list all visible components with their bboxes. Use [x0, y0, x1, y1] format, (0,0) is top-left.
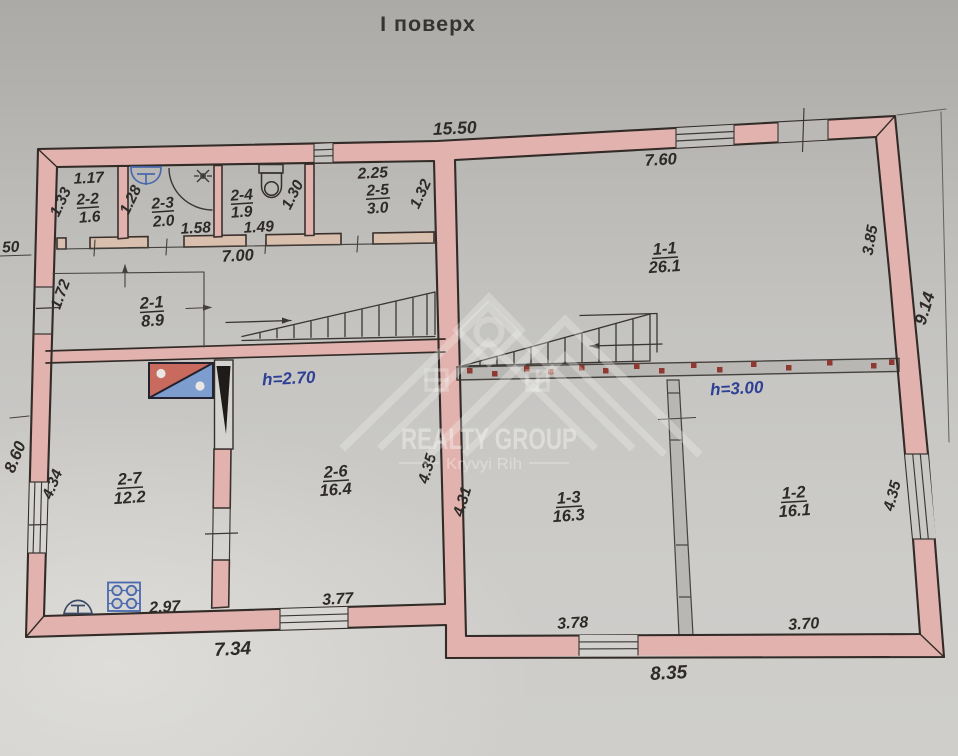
svg-text:16.3: 16.3 [552, 506, 585, 526]
svg-text:7.00: 7.00 [221, 246, 255, 266]
svg-text:3.0: 3.0 [366, 199, 389, 217]
svg-text:3.85: 3.85 [860, 224, 882, 257]
svg-text:7.60: 7.60 [644, 150, 678, 170]
svg-text:2.25: 2.25 [356, 164, 388, 183]
svg-text:3.78: 3.78 [557, 614, 589, 633]
svg-text:Kryvyi Rih: Kryvyi Rih [446, 456, 522, 473]
svg-text:2-3: 2-3 [150, 194, 175, 213]
svg-text:1-2: 1-2 [781, 483, 806, 503]
svg-text:2-4: 2-4 [229, 186, 254, 205]
svg-text:8.9: 8.9 [141, 311, 166, 331]
svg-text:1.49: 1.49 [243, 218, 274, 237]
svg-text:2-5: 2-5 [365, 181, 390, 200]
svg-text:8.60: 8.60 [1, 438, 30, 475]
svg-text:7.34: 7.34 [214, 638, 252, 661]
svg-text:3.70: 3.70 [788, 615, 820, 634]
svg-text:h=2.70: h=2.70 [262, 368, 317, 390]
svg-text:9.14: 9.14 [911, 289, 939, 327]
svg-text:REALTY GROUP: REALTY GROUP [401, 423, 577, 456]
svg-text:3.77: 3.77 [322, 590, 355, 609]
svg-text:2-6: 2-6 [322, 462, 349, 482]
svg-text:26.1: 26.1 [647, 257, 681, 277]
svg-text:2.0: 2.0 [151, 212, 175, 231]
svg-text:2.97: 2.97 [148, 598, 182, 617]
svg-text:15.50: 15.50 [432, 117, 477, 139]
svg-text:8.35: 8.35 [650, 662, 688, 685]
svg-text:1.6: 1.6 [78, 208, 101, 226]
svg-text:12.2: 12.2 [113, 488, 146, 508]
svg-text:50: 50 [2, 239, 20, 257]
svg-text:4.35: 4.35 [880, 479, 905, 514]
svg-text:1-1: 1-1 [652, 239, 677, 259]
svg-text:1.58: 1.58 [180, 219, 211, 238]
svg-text:1.17: 1.17 [73, 169, 105, 188]
svg-text:16.4: 16.4 [319, 480, 352, 500]
svg-text:І поверх: І поверх [380, 12, 476, 36]
svg-text:16.1: 16.1 [778, 501, 811, 521]
svg-text:1.30: 1.30 [279, 177, 308, 212]
svg-text:h=3.00: h=3.00 [710, 378, 765, 400]
svg-text:2-1: 2-1 [138, 293, 164, 313]
svg-text:2-7: 2-7 [116, 469, 143, 489]
svg-text:1-3: 1-3 [556, 488, 581, 508]
svg-text:2-2: 2-2 [75, 190, 100, 209]
svg-text:4.35: 4.35 [415, 451, 440, 486]
svg-text:1.32: 1.32 [407, 176, 435, 211]
